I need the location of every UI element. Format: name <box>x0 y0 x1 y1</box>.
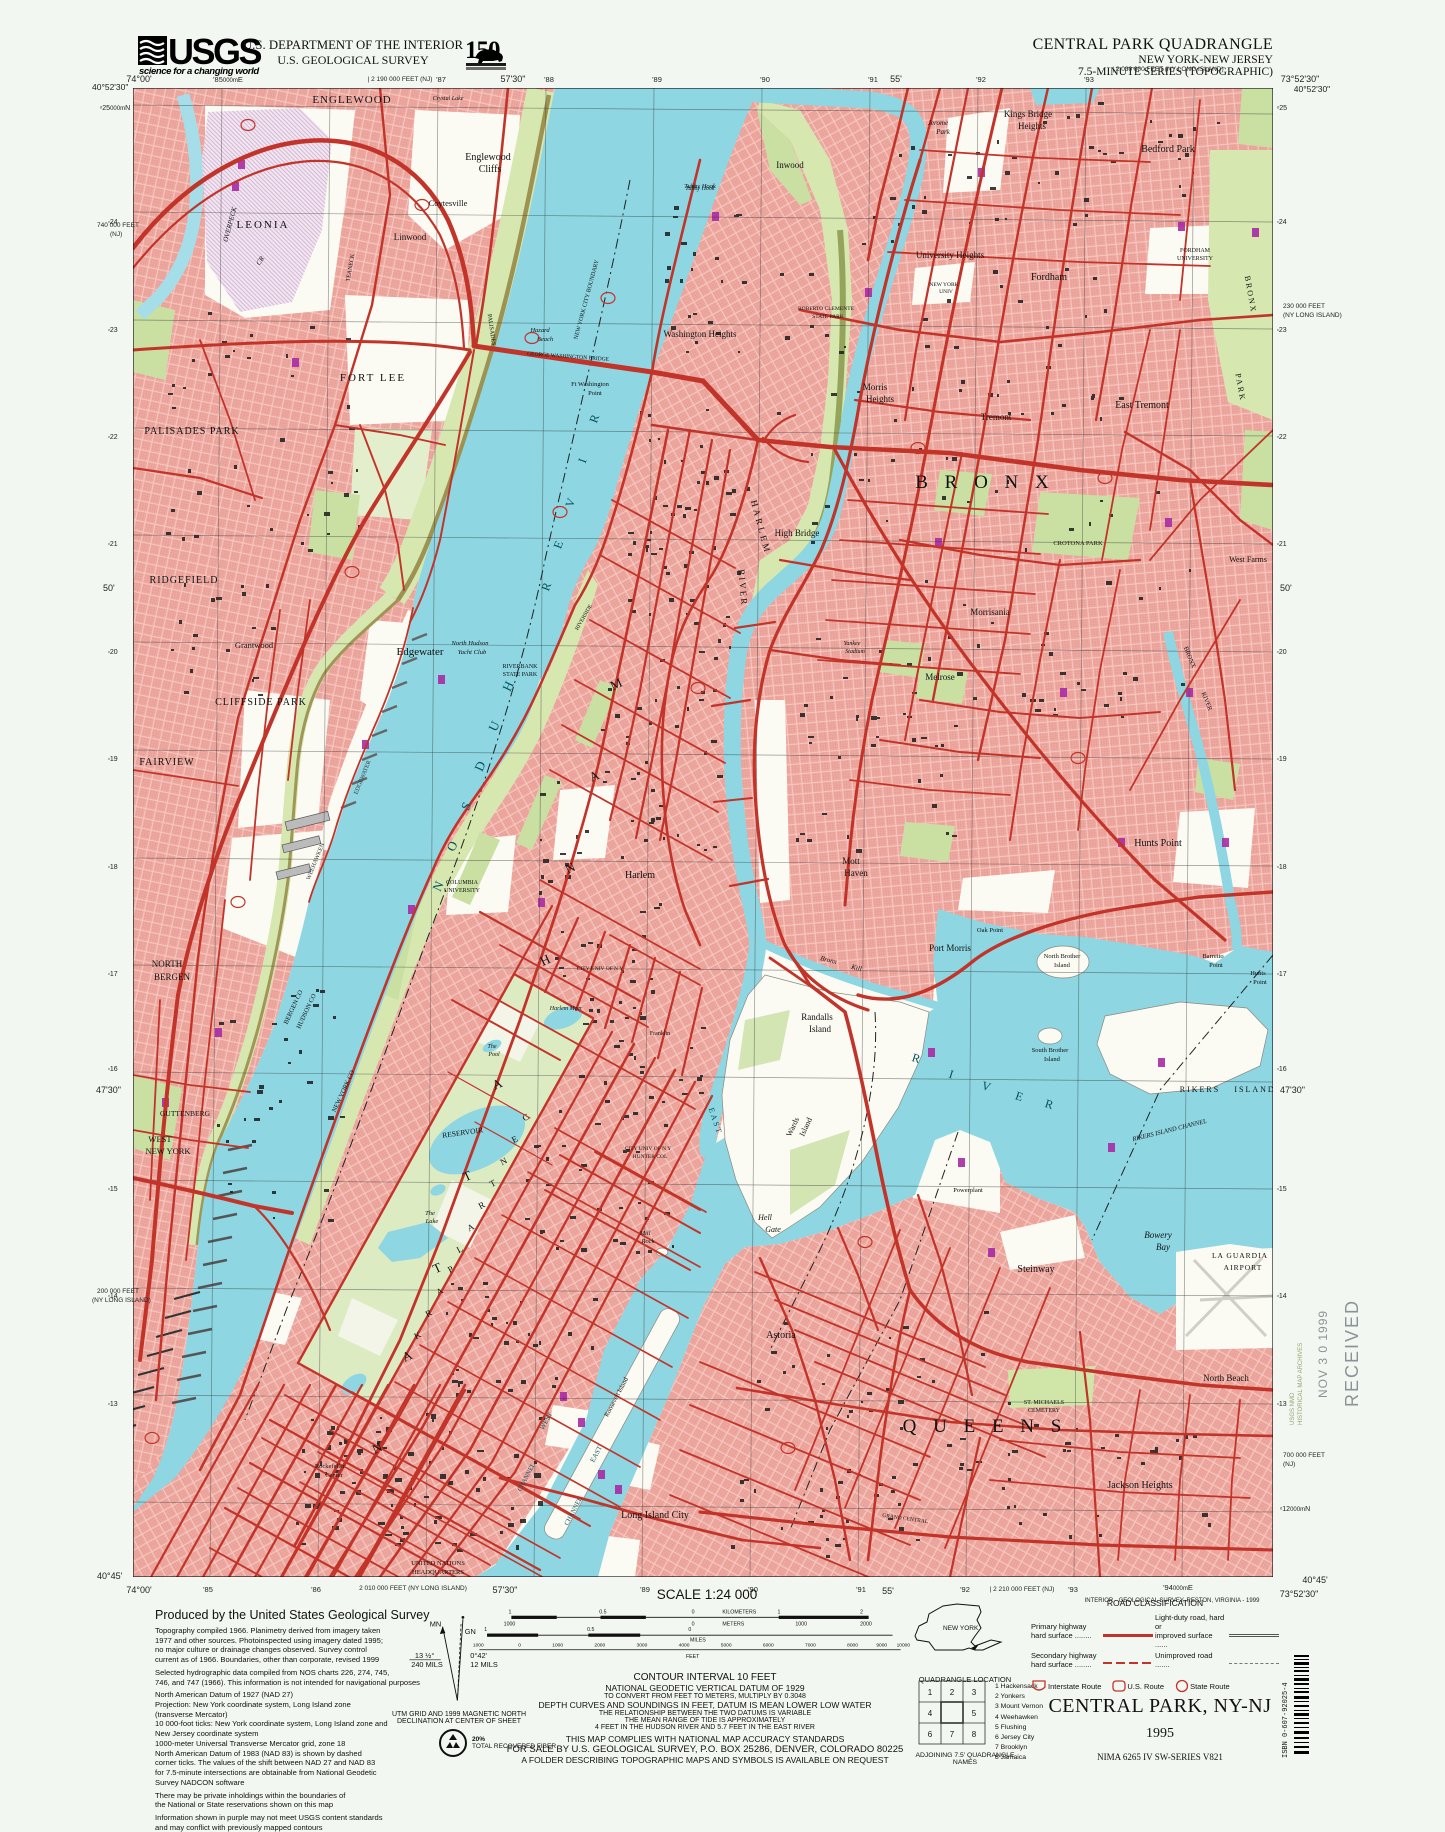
svg-text:COLUMBIA: COLUMBIA <box>446 880 479 886</box>
svg-text:LA GUARDIA: LA GUARDIA <box>1212 1251 1268 1260</box>
svg-text:Center: Center <box>325 1472 343 1479</box>
svg-text:Cliffs: Cliffs <box>479 164 502 175</box>
svg-text:Yacht Club: Yacht Club <box>458 649 487 656</box>
svg-text:Port Morris: Port Morris <box>929 943 971 953</box>
svg-text:The: The <box>425 1210 435 1217</box>
svg-text:MN: MN <box>430 1620 441 1629</box>
svg-text:AIRPORT: AIRPORT <box>1224 1263 1263 1272</box>
svg-text:240 MILS: 240 MILS <box>411 1660 443 1669</box>
svg-text:Franklin: Franklin <box>650 1031 670 1037</box>
svg-text:2000: 2000 <box>594 1643 605 1649</box>
svg-text:Melrose: Melrose <box>925 672 955 682</box>
svg-text:STATE PARK: STATE PARK <box>812 314 844 320</box>
svg-text:5000: 5000 <box>721 1643 732 1649</box>
svg-text:0: 0 <box>692 1609 695 1615</box>
svg-text:13 ½°: 13 ½° <box>415 1651 434 1660</box>
svg-text:LEONIA: LEONIA <box>237 219 290 231</box>
svg-text:NORTH: NORTH <box>152 959 183 969</box>
svg-text:FORDHAM: FORDHAM <box>1180 248 1211 254</box>
svg-text:3000: 3000 <box>637 1643 648 1649</box>
svg-text:B R O N X: B R O N X <box>915 472 1055 493</box>
svg-text:Heights: Heights <box>866 394 894 404</box>
svg-text:2000: 2000 <box>860 1621 872 1627</box>
svg-text:Powerplant: Powerplant <box>953 1187 983 1194</box>
svg-text:Crystal Lake: Crystal Lake <box>433 96 464 102</box>
svg-text:Island: Island <box>809 1024 831 1034</box>
svg-text:Ft Washington: Ft Washington <box>571 381 610 388</box>
svg-text:Hunts Point: Hunts Point <box>1134 838 1182 849</box>
svg-text:METERS: METERS <box>722 1621 744 1627</box>
svg-text:Washington Heights: Washington Heights <box>663 329 737 339</box>
svg-text:Harlem Meer: Harlem Meer <box>549 1006 583 1012</box>
svg-text:7: 7 <box>950 1730 955 1739</box>
svg-text:WEST: WEST <box>148 1134 172 1144</box>
svg-text:CITY UNIV OF N Y: CITY UNIV OF N Y <box>625 1146 672 1152</box>
svg-text:Pool: Pool <box>487 1052 500 1058</box>
svg-text:Barretto: Barretto <box>1202 953 1223 960</box>
svg-text:Rock: Rock <box>641 1238 655 1245</box>
svg-text:0: 0 <box>518 1643 521 1649</box>
svg-text:Stadium: Stadium <box>845 649 865 655</box>
svg-text:Oak Point: Oak Point <box>977 927 1003 934</box>
svg-text:ENGLEWOOD: ENGLEWOOD <box>312 94 391 106</box>
svg-text:9000: 9000 <box>876 1643 887 1649</box>
svg-text:5: 5 <box>972 1709 977 1718</box>
svg-text:Yankee: Yankee <box>844 641 861 647</box>
svg-text:Island: Island <box>1044 1056 1061 1063</box>
svg-text:ROBERTO CLEMENTE: ROBERTO CLEMENTE <box>798 306 855 312</box>
svg-text:STATE PARK: STATE PARK <box>503 672 538 678</box>
svg-text:8000: 8000 <box>847 1643 858 1649</box>
svg-text:4000: 4000 <box>679 1643 690 1649</box>
svg-text:High Bridge: High Bridge <box>775 528 820 538</box>
svg-text:2: 2 <box>860 1609 863 1615</box>
svg-text:0: 0 <box>692 1621 695 1627</box>
svg-text:Haven: Haven <box>844 868 868 878</box>
svg-text:NEW YORK: NEW YORK <box>943 1625 979 1632</box>
svg-text:UNITED NATIONS: UNITED NATIONS <box>411 1560 465 1567</box>
svg-text:CROTONA PARK: CROTONA PARK <box>1053 540 1103 547</box>
svg-text:4: 4 <box>928 1709 933 1718</box>
svg-text:1: 1 <box>484 1627 487 1633</box>
svg-text:Coytesville: Coytesville <box>429 198 468 208</box>
svg-text:Edgewater: Edgewater <box>396 646 443 658</box>
svg-text:Bowery: Bowery <box>1144 1230 1172 1240</box>
svg-text:The: The <box>488 1044 497 1050</box>
svg-text:NEW YORK: NEW YORK <box>145 1146 191 1156</box>
svg-text:Randalls: Randalls <box>801 1012 833 1022</box>
svg-text:Grantwood: Grantwood <box>235 640 274 650</box>
svg-text:1: 1 <box>777 1609 780 1615</box>
svg-text:University Heights: University Heights <box>916 250 985 260</box>
svg-text:East Tremont: East Tremont <box>1115 400 1169 411</box>
svg-text:CEMETERY: CEMETERY <box>1028 1408 1061 1414</box>
svg-text:Jackson Heights: Jackson Heights <box>1107 1480 1172 1491</box>
svg-text:NEW YORK: NEW YORK <box>929 282 958 288</box>
svg-text:BERGEN: BERGEN <box>154 972 191 982</box>
svg-text:ISLAND: ISLAND <box>1234 1085 1273 1094</box>
svg-text:Island: Island <box>1054 962 1071 969</box>
svg-text:1: 1 <box>928 1688 933 1697</box>
svg-text:GUTTENBERG: GUTTENBERG <box>160 1109 211 1118</box>
svg-text:Harlem: Harlem <box>625 870 655 881</box>
svg-text:8: 8 <box>972 1730 977 1739</box>
svg-text:CITY UNIV OF N Y: CITY UNIV OF N Y <box>577 966 624 972</box>
svg-text:Morrisania: Morrisania <box>970 607 1010 617</box>
svg-text:6: 6 <box>928 1730 933 1739</box>
svg-text:Mill: Mill <box>639 1230 651 1237</box>
svg-text:Heights: Heights <box>1018 121 1046 131</box>
svg-text:Gate: Gate <box>765 1225 781 1234</box>
svg-text:UNIVERSITY: UNIVERSITY <box>1177 256 1214 262</box>
svg-text:KILOMETERS: KILOMETERS <box>722 1609 756 1615</box>
svg-text:HEADQUARTERS: HEADQUARTERS <box>412 1569 464 1576</box>
svg-text:Park: Park <box>935 128 951 136</box>
svg-text:1: 1 <box>509 1609 512 1615</box>
svg-text:Point: Point <box>588 390 602 397</box>
svg-text:Astoria: Astoria <box>766 1330 796 1341</box>
svg-text:Jerome: Jerome <box>928 119 948 127</box>
svg-text:Rockefeller: Rockefeller <box>315 1463 346 1470</box>
svg-text:CLIFFSIDE PARK: CLIFFSIDE PARK <box>215 697 307 708</box>
svg-text:0.5: 0.5 <box>599 1609 606 1615</box>
svg-text:South Brother: South Brother <box>1032 1047 1069 1054</box>
svg-text:ST. MICHAELS: ST. MICHAELS <box>1024 1400 1064 1406</box>
svg-text:Point: Point <box>1253 979 1267 986</box>
svg-text:Kings Bridge: Kings Bridge <box>1004 109 1052 119</box>
svg-text:UNIV: UNIV <box>939 289 953 295</box>
svg-text:North Beach: North Beach <box>1203 1373 1249 1383</box>
svg-text:FAIRVIEW: FAIRVIEW <box>139 757 194 768</box>
svg-text:Hell: Hell <box>757 1213 773 1222</box>
svg-text:Bay: Bay <box>1156 1242 1170 1252</box>
svg-text:HUNTER COL: HUNTER COL <box>633 1154 668 1160</box>
svg-text:PALISADES PARK: PALISADES PARK <box>144 426 239 437</box>
svg-text:Mott: Mott <box>842 856 860 866</box>
svg-text:Inwood: Inwood <box>776 160 804 170</box>
svg-text:6000: 6000 <box>763 1643 774 1649</box>
svg-text:FEET: FEET <box>686 1654 700 1660</box>
svg-text:UNIVERSITY: UNIVERSITY <box>444 888 481 894</box>
svg-text:Q U E E N S: Q U E E N S <box>903 1416 1068 1437</box>
svg-text:RIVERBANK: RIVERBANK <box>502 664 538 670</box>
svg-text:West Farms: West Farms <box>1229 555 1267 564</box>
svg-text:1000: 1000 <box>473 1643 484 1649</box>
svg-text:FORT LEE: FORT LEE <box>340 372 406 384</box>
svg-text:Englewood: Englewood <box>465 152 511 163</box>
svg-text:Bedford Park: Bedford Park <box>1141 144 1195 155</box>
svg-text:3: 3 <box>972 1688 977 1697</box>
svg-text:Tremont: Tremont <box>981 412 1012 422</box>
svg-text:North Brother: North Brother <box>1044 953 1081 960</box>
svg-text:1000: 1000 <box>504 1621 516 1627</box>
svg-text:Long Island City: Long Island City <box>621 1510 689 1521</box>
svg-text:Steinway: Steinway <box>1017 1264 1054 1275</box>
svg-text:Hunts: Hunts <box>1250 970 1266 977</box>
svg-text:RIDGEFIELD: RIDGEFIELD <box>150 575 219 586</box>
svg-text:Tubby Hook: Tubby Hook <box>685 186 715 192</box>
svg-text:Point: Point <box>1209 962 1223 969</box>
svg-text:RIKERS: RIKERS <box>1180 1085 1220 1094</box>
svg-text:1000: 1000 <box>552 1643 563 1649</box>
svg-text:Lake: Lake <box>425 1218 439 1225</box>
svg-text:1000: 1000 <box>795 1621 807 1627</box>
svg-text:MILES: MILES <box>690 1638 706 1644</box>
svg-text:0: 0 <box>688 1627 691 1633</box>
svg-text:0.5: 0.5 <box>587 1627 594 1633</box>
svg-text:7000: 7000 <box>805 1643 816 1649</box>
svg-text:Fordham: Fordham <box>1031 272 1067 283</box>
svg-text:Linwood: Linwood <box>394 232 427 242</box>
svg-text:2: 2 <box>950 1688 955 1697</box>
svg-text:Morris: Morris <box>863 382 888 392</box>
svg-text:North Hudson: North Hudson <box>450 640 488 647</box>
